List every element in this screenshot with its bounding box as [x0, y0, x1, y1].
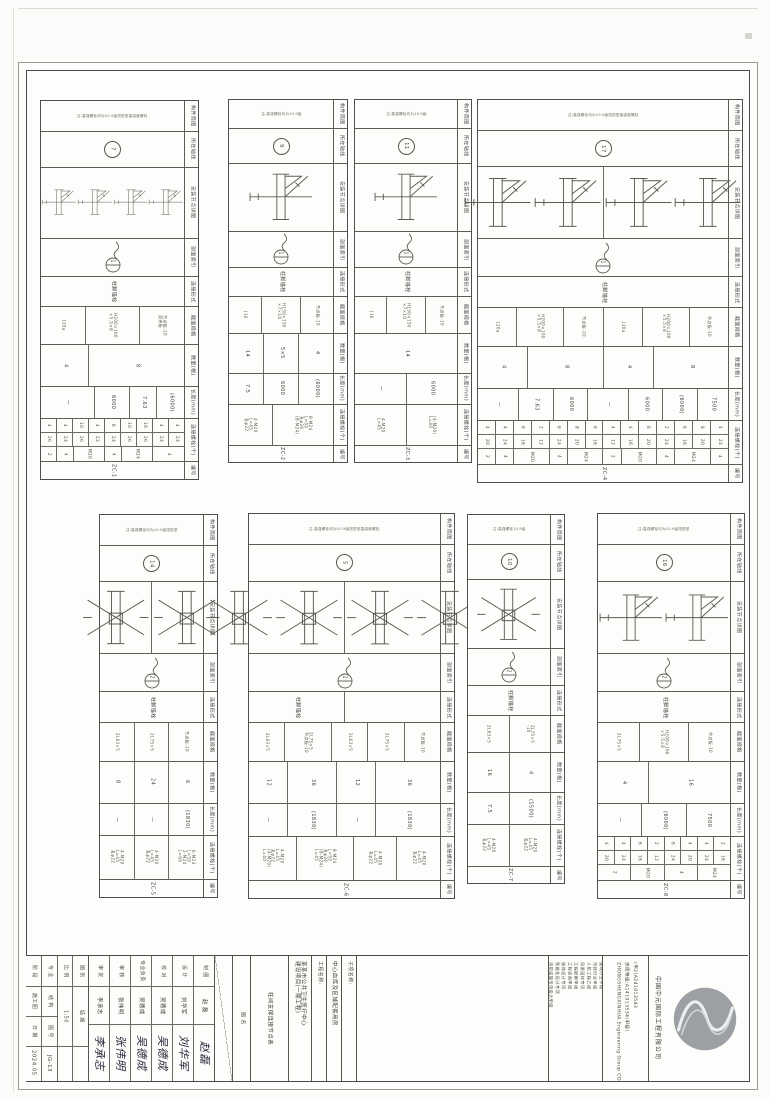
quantity-cell: 14	[355, 334, 457, 373]
cell-row: 4-M20 L=45 孔φ22 (4-M20) L=408-M24 L=50 孔…	[249, 837, 440, 880]
band-id: ZC-7编号	[468, 867, 564, 883]
project-name-cell: 某某市公共卫生医疗中心 建设项目(一期工程)	[288, 956, 311, 1081]
signature-script-cell: 张伟明	[110, 1024, 130, 1081]
band-label: 所在轴线	[338, 135, 344, 157]
band-label-cell: 所在轴线	[184, 132, 198, 167]
cell-text: 4-M20 L=45 孔φ22	[482, 838, 495, 853]
band-bolts: 4-M20 L=45(4-M20) L=40连接螺栓(个)	[355, 405, 471, 447]
section-cell: H200×100 ×5.5×8	[639, 723, 689, 761]
bolt-grid-value: 24	[620, 855, 625, 861]
svg-text:2: 2	[661, 675, 667, 678]
band-label-cell: 长度(mm)	[728, 389, 742, 421]
band-label-cell: 数量(根)	[728, 347, 742, 388]
cell-row: 12361236	[249, 762, 440, 803]
band-label-cell: 连接形式	[184, 277, 198, 307]
cell-text: 6	[183, 780, 189, 784]
info-grid-cell: 图 号	[42, 1016, 57, 1046]
svg-text:1: 1	[278, 252, 284, 255]
axis-bubble: 10	[501, 553, 518, 570]
band-len: —(1830)—(1830)长度(mm)	[249, 804, 454, 837]
cell-row: 2L63×52L75×5节点板-10	[100, 723, 203, 760]
band-label-cell: 构件简图	[730, 514, 744, 544]
bolt-grid-value: 4	[627, 426, 632, 429]
bolt-grid-cell: 6	[674, 421, 692, 434]
schedule-table-6: 注:高强螺栓均为10.9级扭剪型高强度螺栓构件简图5所在轴线安装节点详图2剖面索…	[248, 513, 455, 899]
table-note-text: 注:高强螺栓均为10.9级扭剪型高强度螺栓	[309, 526, 380, 531]
band-label: 连接形式	[555, 690, 561, 712]
band-conn-content: 柱脚锚栓	[249, 692, 440, 722]
bolt-grid-cell: M20	[73, 447, 105, 462]
bolt-grid-cell: M20	[513, 449, 548, 464]
bolt-grid-cell: 4	[152, 419, 168, 432]
quantity-cell: 12	[336, 762, 375, 803]
band-axis-content: 16	[598, 545, 730, 581]
band-sections: [20aH200×100 ×5.5×8节点板-10 双夹板截面规格	[41, 307, 198, 345]
band-label: 数量(根)	[462, 343, 468, 364]
cell-text: 2L63×5	[348, 733, 352, 751]
bolt-grid: 4462686446268420241612242016121620241620…	[478, 421, 728, 464]
band-label-cell: 数量(根)	[203, 762, 217, 803]
signature-name-cell: 李承志	[89, 986, 109, 1024]
band-conn: 柱脚锚栓连接形式	[468, 686, 564, 716]
bolt-grid-row: 44626864462684	[478, 421, 728, 434]
band-id: ZC-3编号	[355, 446, 471, 462]
band-label-cell: 连接螺栓(个)	[203, 836, 217, 879]
cell-text: (1830)	[183, 810, 189, 829]
length-cell: 6000	[94, 387, 128, 418]
band-label-cell: 编号	[333, 446, 347, 462]
company-logo-icon	[666, 980, 744, 1058]
corner-node-sketch	[664, 587, 730, 648]
bolt-grid-value: 4	[717, 455, 722, 458]
section-cell: [20a	[41, 307, 85, 344]
band-label: 连接螺栓(个)	[338, 409, 344, 441]
signature-role: 制 图	[201, 965, 207, 978]
band-label: 编号	[208, 883, 214, 894]
bolt-grid-value: 6	[592, 426, 597, 429]
band-label: 截面规格	[462, 304, 468, 326]
quantity-cell: 4	[478, 347, 527, 388]
band-len: 7.5(1500)长度(mm)	[468, 793, 564, 825]
section-cell: H200×100 ×5.5×8	[85, 307, 139, 344]
band-id-content: ZC-4	[478, 465, 728, 482]
band-qty-content: 8246	[100, 762, 203, 803]
quantity-cell: 8	[88, 345, 184, 386]
cross-brace-node-sketch	[345, 587, 415, 648]
band-qty: 145×54数量(根)	[229, 334, 347, 374]
band-label-cell: 连接形式	[203, 692, 217, 722]
schedule-table-4: 注:高强螺栓均为10.9级扭剪型高强度螺栓构件简图17所在轴线安装节点详图1剖面…	[477, 99, 743, 483]
cell-text: 8-M24 L=50 孔φ26 (8-M24)	[294, 416, 312, 434]
drawing-title-label: 图 名	[239, 1012, 245, 1025]
band-cut-content: 1	[41, 239, 184, 276]
band-id-content: ZC-6	[249, 881, 440, 898]
band-label: 编号	[462, 449, 468, 460]
bolt-grid-value: 20	[603, 855, 608, 861]
handwritten-signature: 张伟明	[114, 1035, 126, 1071]
quantity-cell: 8	[653, 347, 728, 388]
signature-script-cell: 吴德成	[131, 1024, 151, 1081]
bolt-grid-cell: 6	[549, 421, 567, 434]
bolt-grid-cell: 2	[713, 837, 730, 850]
bolt-grid-cell: 24	[710, 435, 728, 448]
bolt-grid-cell: 24	[549, 435, 567, 448]
cell-row: 4-M20 L=45 孔φ224-M20 L=45 孔φ226-M24 L=50…	[100, 836, 203, 879]
bolt-grid-value: 20	[574, 439, 579, 445]
band-label: 长度(mm)	[445, 807, 451, 833]
bolt-text-cell: 6-M24 L=50 2-M24 L=60	[168, 836, 203, 879]
band-bolts: 4-M20 L=45 孔φ228-M24 L=50 孔φ26 (8-M24)连接…	[229, 405, 347, 447]
bolt-grid-value: 8	[574, 426, 579, 429]
bolt-grid-cell: 4	[41, 419, 56, 432]
band-id-content: ZC-8	[598, 881, 730, 898]
band-id: ZC-2编号	[229, 446, 347, 462]
cell-text: 4-M20 L=45 孔φ22	[110, 850, 123, 865]
cell-text: 7.63	[533, 398, 539, 411]
handwritten-signature: 赵磊	[198, 1041, 210, 1065]
bolt-grid-value: 20	[687, 855, 692, 861]
handwritten-signature: 李承志	[93, 1035, 105, 1071]
bolt-grid-value: 24	[158, 436, 163, 442]
cell-text: 4	[527, 771, 533, 775]
bolt-grid-value: 6	[645, 426, 650, 429]
cell-row: [16H150×150 ×7×10节点板-10	[229, 297, 333, 332]
bolt-grid-cell: 24	[168, 433, 184, 446]
band-id: ZC-4编号	[478, 465, 742, 482]
sketch-half	[603, 167, 743, 238]
length-cell: —	[355, 374, 406, 404]
info-grid-column: 比 例1:50	[57, 956, 73, 1081]
band-note: 注:高强螺栓均为10.9级构件简图	[229, 100, 347, 129]
band-cut-content: 2	[468, 649, 550, 685]
band-sketch: 安装节点详图	[468, 580, 564, 649]
cell-row: 145×54	[229, 334, 333, 373]
cell-text: 2L75×5	[616, 733, 620, 751]
band-note-content: 注:高强螺栓均为10.9级扭剪型高强度螺栓	[478, 100, 728, 130]
length-cell: —	[478, 389, 518, 421]
band-label: 剖面索引	[189, 246, 195, 268]
cell-text: 6000	[429, 381, 435, 395]
band-conn: 柱脚锚栓连接形式	[249, 692, 454, 723]
info-grid-text: 2024.05	[30, 1050, 36, 1076]
cell-text: 柱脚锚栓	[600, 282, 606, 304]
section-cell: 2L75×5 节点板-10	[284, 723, 331, 761]
band-label: 剖面索引	[733, 247, 739, 269]
bolt-grid-value: 4	[62, 424, 67, 427]
bolt-grid-cell: 4	[152, 447, 184, 462]
band-bolts-content: 4-M20 L=45 孔φ224-M20 L=45 孔φ226-M24 L=50…	[100, 836, 203, 879]
band-label: 安装节点详图	[555, 598, 561, 630]
band-id: ZC-6编号	[249, 881, 454, 898]
band-conn-content: 柱脚锚栓	[100, 692, 203, 722]
bolt-grid-cell: 10	[120, 419, 136, 432]
cell-text: 节点板-10	[439, 305, 443, 326]
schedule-table-3: 注:高强螺栓均为10.9级构件简图11所在轴线安装节点详图1剖面索引柱脚锚栓连接…	[354, 99, 472, 463]
bolt-grid-value: 4	[703, 842, 708, 845]
band-label: 连接螺栓(个)	[208, 842, 214, 874]
band-label-cell: 连接形式	[333, 268, 347, 296]
cell-text: 6000	[567, 397, 573, 411]
signature-script-cell: 李承志	[89, 1024, 109, 1081]
band-label-cell: 截面规格	[457, 297, 471, 332]
bolt-grid-cell: 24	[664, 851, 681, 864]
band-conn: 柱脚锚栓连接形式	[355, 268, 471, 297]
signature-role-cell: 审 核	[110, 956, 130, 986]
section-cell: 2L75×5	[134, 723, 169, 760]
bolt-grid-cell: 16	[136, 419, 152, 432]
bolt-grid-value: 4	[111, 453, 116, 456]
signature-script-cell: 吴德成	[152, 1024, 172, 1081]
band-sketch: 安装节点详图	[478, 167, 742, 239]
axis-number: 9	[278, 144, 284, 148]
section-cell: H150×150 ×7×10	[261, 297, 300, 332]
cell-text: 36	[405, 779, 411, 786]
signature-name-cell: 张伟明	[110, 986, 130, 1024]
band-len-content: —60007.63(6000)	[41, 387, 184, 418]
band-label: 截面规格	[338, 304, 344, 326]
bolt-grid-cell: 22	[88, 433, 104, 446]
bolt-grid-cell: 2	[602, 449, 620, 464]
bolt-text-cell: 4-M20 L=45	[355, 405, 406, 446]
bolt-grid-row: 24M204M242M204M244	[478, 448, 728, 464]
band-conn-content: 柱脚锚栓	[41, 277, 184, 307]
bolt-grid-row: 441046101644	[41, 419, 184, 432]
bolt-grid-value: 4	[166, 453, 171, 456]
band-label: 连接形式	[735, 697, 741, 719]
bolt-grid-cell: 20	[41, 433, 56, 446]
band-label: 截面规格	[555, 723, 561, 745]
cell-text: (1830)	[405, 811, 411, 830]
bolt-grid-cell: M20	[621, 449, 656, 464]
section-cut-symbol: 1	[393, 232, 419, 266]
cell-text: 2L63×5	[486, 725, 490, 743]
band-label-cell: 剖面索引	[440, 654, 454, 692]
cell-text: [20a	[61, 320, 65, 331]
bolt-grid-cell: 20	[72, 433, 88, 446]
info-grid-cell: JG-13	[42, 1046, 57, 1079]
band-label: 所在轴线	[462, 135, 468, 157]
quantity-cell: 4	[509, 753, 551, 792]
bolt-grid-value: 4	[663, 455, 668, 458]
cell-text: [20a	[620, 322, 624, 333]
cell-text: (1500)	[527, 799, 533, 818]
cell-text: 2L75×5 节点板-10	[304, 732, 313, 753]
bolt-grid-cell: 12	[531, 435, 549, 448]
info-grid-text: 专 业	[46, 965, 52, 978]
cell-row: 柱脚锚栓	[41, 277, 184, 307]
length-cell: —	[249, 804, 287, 836]
handwritten-signature: 吴德成	[135, 1035, 147, 1071]
bolt-grid-cell: 4	[656, 449, 674, 464]
section-cell: [16	[355, 297, 386, 332]
cell-text: 节点板-10	[184, 731, 188, 752]
cell-row: 柱脚锚栓	[355, 268, 457, 296]
bolt-grid-cell: 8	[692, 421, 710, 434]
band-label-cell: 截面规格	[333, 297, 347, 332]
band-label-cell: 连接形式	[550, 686, 564, 715]
cell-text: 7.5	[243, 384, 249, 393]
bolt-grid: 44104610164420242022242020242424M204M244	[41, 419, 184, 461]
bolt-grid-cell: 20	[598, 851, 614, 864]
length-cell: —	[587, 389, 628, 421]
band-id-content: ZC-5	[100, 880, 203, 897]
band-label-cell: 截面规格	[440, 723, 454, 761]
length-cell: —	[41, 387, 94, 418]
band-label: 数量(根)	[555, 762, 561, 783]
band-axis: 14所在轴线	[100, 546, 217, 582]
titleblock-info-grid: 阶 段施工图日 期2024.05专 业结 构图 号JG-13比 例1:50图 别…	[26, 956, 88, 1081]
section-cell: H200×100 ×5.5×8	[642, 308, 689, 345]
band-label: 所在轴线	[555, 551, 561, 573]
member-code: ZC-1	[110, 464, 116, 478]
band-label-cell: 连接形式	[728, 277, 742, 307]
bolt-grid-cell: 6	[638, 421, 656, 434]
quantity-cell: 4	[603, 347, 653, 388]
length-cell: (1500)	[509, 793, 551, 824]
band-axis: 7所在轴线	[41, 132, 198, 168]
cell-text: 柱脚锚栓	[294, 697, 300, 719]
bolt-grid-value: 4	[556, 455, 561, 458]
band-axis-content: 11	[355, 129, 457, 163]
band-sketch-content	[478, 167, 728, 238]
svg-text:1: 1	[109, 260, 115, 263]
info-grid-cell: 2024.05	[26, 1046, 41, 1079]
band-len-content: 7.56000(6000)	[229, 374, 333, 404]
bolt-grid-cell: 4	[104, 447, 120, 462]
corner-node-sketch	[598, 587, 664, 648]
band-label: 构件简图	[208, 519, 214, 541]
quantity-cell: 8	[100, 762, 134, 803]
band-cut: 2剖面索引	[249, 654, 454, 693]
signature-column: 专业负责吴德成吴德成	[130, 956, 151, 1081]
cell-text: H150×150 ×7×10	[277, 303, 286, 328]
bolt-grid-row: 202420222420202424	[41, 432, 184, 446]
band-len: —60007.63(6000)长度(mm)	[41, 387, 198, 419]
length-cell: —	[598, 804, 641, 836]
length-cell: 7500	[697, 389, 728, 421]
cell-text: 4	[625, 365, 631, 369]
member-code: ZC-6	[342, 883, 348, 897]
band-note: 注:高强螺栓均为10.9级构件简图	[355, 100, 471, 129]
connection-cell: 柱脚锚栓	[598, 692, 730, 722]
bolt-grid-cell: 16	[674, 435, 692, 448]
cross-brace-node-sketch	[204, 587, 274, 648]
band-note: 注:高强螺栓均为10.9级扭剪型高强度螺栓构件简图	[478, 100, 742, 131]
band-label: 数量(根)	[338, 343, 344, 364]
cell-text: 8-M24 L=50 孔φ26 (8-M24) L=45	[314, 849, 336, 867]
bolt-grid-cell: 16	[513, 435, 531, 448]
bolt-grid-row: 24M204M244	[41, 446, 184, 462]
cell-row: ——(1830)	[100, 804, 203, 836]
band-label: 编号	[445, 884, 451, 895]
band-label: 构件简图	[733, 104, 739, 126]
bolt-grid-cell: 4	[620, 421, 638, 434]
cell-text: 柱脚锚栓	[403, 271, 409, 293]
band-qty-content: 164	[468, 753, 550, 792]
cell-text: 节点板-10	[315, 305, 319, 326]
band-axis-content: 14	[100, 546, 203, 581]
info-grid-cell	[58, 1046, 73, 1079]
band-conn: 柱脚锚栓连接形式	[41, 277, 198, 308]
band-cut: 1剖面索引	[355, 232, 471, 268]
info-grid-cell: 1:50	[58, 986, 73, 1046]
bolt-grid-cell: 4	[614, 837, 631, 850]
bolt-grid-cell: 2	[531, 421, 549, 434]
band-axis-content: 7	[41, 132, 184, 167]
quantity-cell: 6	[168, 762, 203, 803]
band-bolts: 4-M20 L=45 孔φ224-M20 L=45 孔φ226-M24 L=50…	[100, 836, 217, 880]
cell-text: 14	[243, 350, 249, 357]
bolt-grid-value: 12	[653, 855, 658, 861]
band-sections-content: [20aH200×100 ×5.5×8节点板-10[20aH200×100 ×5…	[478, 308, 728, 345]
band-label: 构件简图	[462, 103, 468, 125]
section-cell: 2L63×5	[468, 716, 509, 752]
cell-text: [16	[368, 311, 372, 319]
band-label-cell: 连接螺栓(个)	[333, 405, 347, 446]
cell-text: 2L63×5	[264, 733, 268, 751]
bolt-grid-cell: 24	[495, 435, 513, 448]
cell-text: —	[265, 817, 271, 822]
cell-row: —7.636000—6000(6000)7500	[478, 389, 728, 421]
quantity-cell: 8	[527, 347, 602, 388]
bolt-grid-value: 20	[142, 436, 147, 442]
bolt-grid-value: 4	[158, 424, 163, 427]
signature-printed-name: 吴德成	[159, 997, 165, 1015]
axis-bubble: 16	[656, 554, 673, 571]
subproject-label-cell: 子项名称:	[341, 956, 356, 1081]
bolt-text-cell: 4-M20 L=45 孔φ22	[353, 837, 397, 880]
band-conn: 柱脚锚栓连接形式	[229, 268, 347, 297]
cell-text: 4-M20 L=45	[376, 418, 385, 433]
band-label: 连接螺栓(个)	[189, 424, 195, 456]
bolt-grid-cell: 4	[602, 421, 620, 434]
band-sketch-content	[355, 164, 457, 231]
bolt-grid-row: 2024161224202416	[598, 850, 730, 864]
bolt-grid-cell: 16	[620, 435, 638, 448]
band-cut: 2剖面索引	[598, 654, 744, 693]
band-label: 长度(mm)	[462, 375, 468, 401]
band-conn-content: 柱脚锚栓	[478, 277, 728, 307]
band-sections: [16H150×150 ×7×10节点板-10截面规格	[355, 297, 471, 333]
bolt-grid-cell: 2	[647, 837, 664, 850]
band-note-content: 注:高强螺栓均为10.9级	[229, 100, 333, 128]
bolt-grid-value: M24	[583, 452, 588, 462]
bolt-grid-value: 4	[678, 871, 683, 874]
length-cell: 7.5	[468, 793, 509, 824]
bolt-grid-value: 24	[703, 855, 708, 861]
info-grid-cell: 比 例	[58, 956, 73, 986]
bolt-grid-value: 6	[520, 426, 525, 429]
bolt-grid-value: 24	[174, 436, 179, 442]
bolt-grid-cell: 4	[478, 421, 495, 434]
band-id-content: ZC-1	[41, 462, 184, 479]
bolt-grid-value: 4	[502, 455, 507, 458]
cell-text: 8	[114, 780, 120, 784]
bolt-grid-value: M20	[637, 452, 642, 462]
band-label: 安装节点详图	[338, 181, 344, 213]
cell-text: 柱脚锚栓	[110, 281, 116, 303]
band-sections: 2L63×52L75×5 节点板-102L63×52L75×5节点板-10截面规…	[249, 723, 454, 762]
band-label: 所在轴线	[208, 553, 214, 575]
bolt-text-cell: 4-M20 L=45 孔φ22	[468, 825, 509, 866]
corner-node-sketch	[533, 172, 603, 233]
band-axis-content: 17	[478, 131, 728, 166]
bolt-grid-cell: 6	[664, 837, 681, 850]
cell-row: —6000	[355, 374, 457, 404]
info-grid-text: 图 别	[78, 965, 84, 978]
band-note: 注:高强螺栓均为10.9级扭剪型高强度螺栓构件简图	[41, 101, 198, 132]
bolt-grid-value: 16	[592, 439, 597, 445]
